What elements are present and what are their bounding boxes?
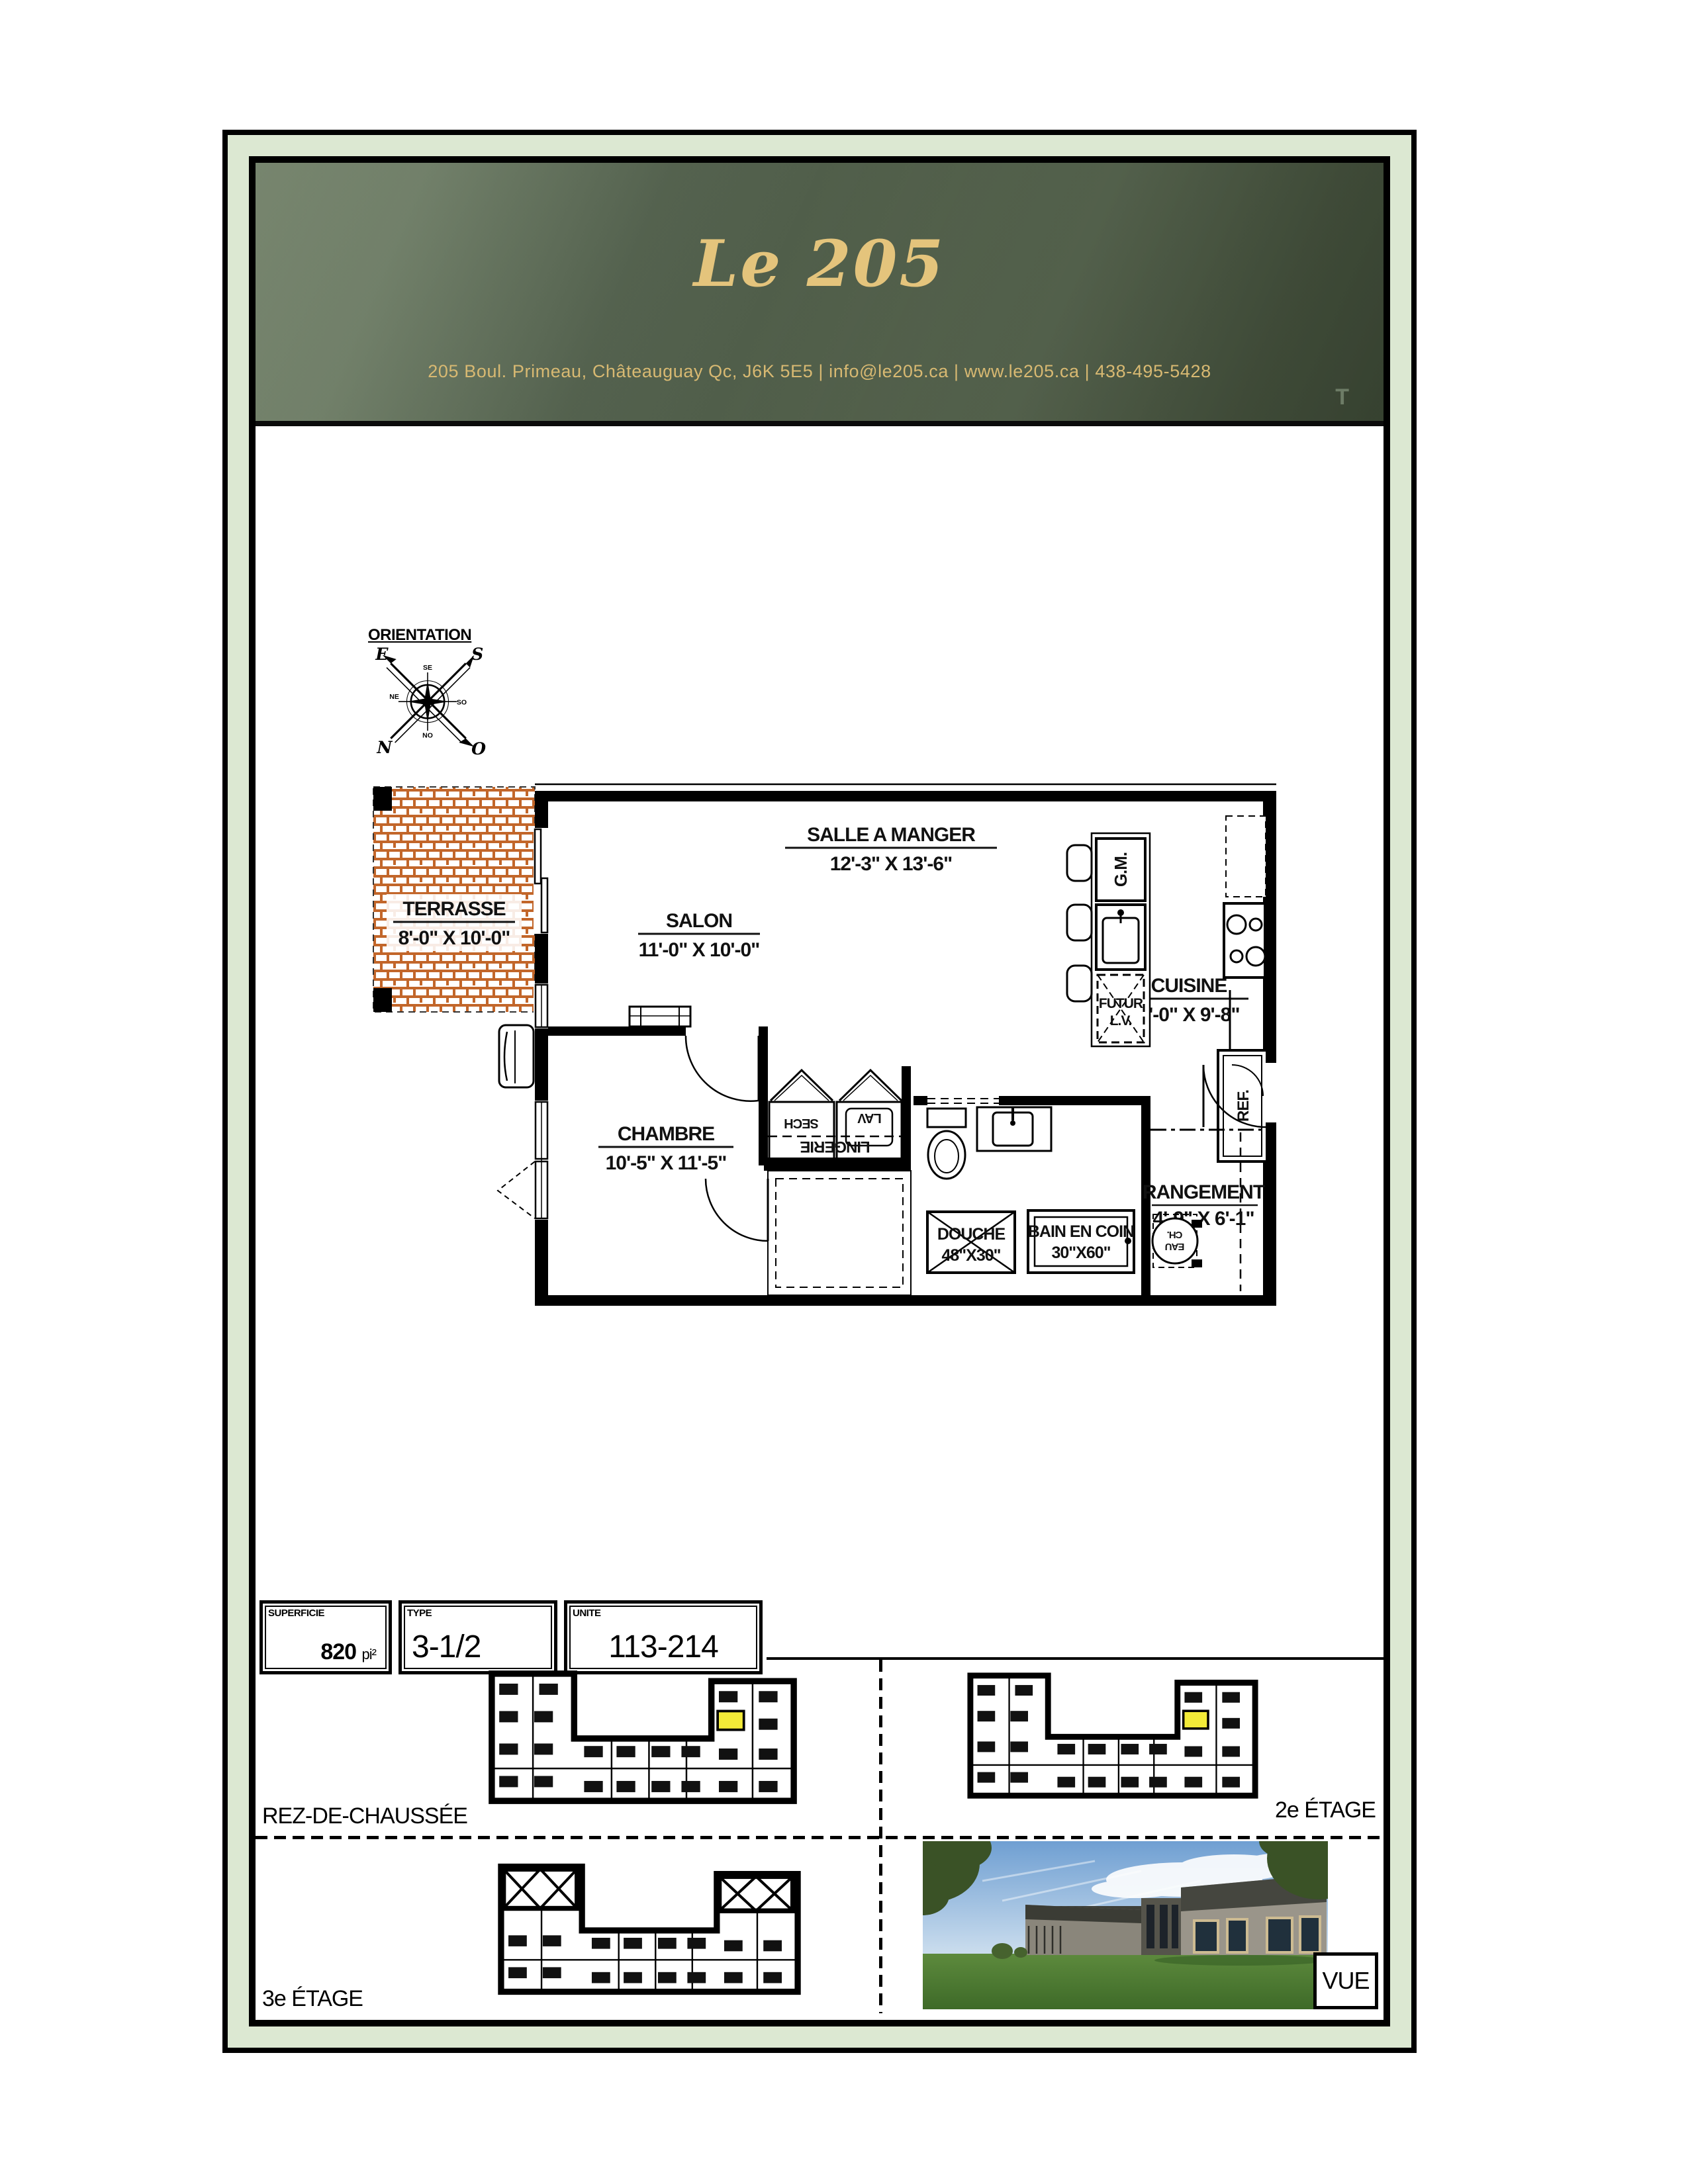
svg-text:SALLE A MANGER: SALLE A MANGER bbox=[807, 824, 976, 846]
section-divider-line bbox=[767, 1657, 1383, 1660]
level-label-etage3: 3e ÉTAGE bbox=[262, 1986, 363, 2012]
svg-text:LAV: LAV bbox=[857, 1111, 882, 1125]
room-label-salle-a-manger: SALLE A MANGER 12'-3" X 13'-6" bbox=[785, 824, 997, 875]
info-box-superficie: SUPERFICIE 820 pi² bbox=[259, 1600, 392, 1674]
superficie-value: 820 pi² bbox=[320, 1639, 376, 1665]
svg-text:L.V.: L.V. bbox=[1110, 1013, 1132, 1028]
heat-pump bbox=[499, 1025, 534, 1087]
stool-icon bbox=[1067, 845, 1092, 881]
unite-value: 113-214 bbox=[571, 1629, 756, 1665]
room-label-cuisine: CUISINE 8'-0" X 9'-8" bbox=[1136, 975, 1248, 1026]
superficie-label: SUPERFICIE bbox=[268, 1608, 324, 1619]
compass-rose-icon: N S E O SE SO NO NE bbox=[368, 645, 487, 756]
svg-text:SO: SO bbox=[457, 698, 467, 706]
svg-text:CH.: CH. bbox=[1167, 1229, 1183, 1240]
toilet-icon bbox=[927, 1109, 966, 1179]
svg-text:10'-5" X 11'-5": 10'-5" X 11'-5" bbox=[606, 1152, 727, 1174]
svg-text:48"X30": 48"X30" bbox=[942, 1246, 1001, 1265]
svg-text:8'-0" X 10'-0": 8'-0" X 10'-0" bbox=[399, 927, 510, 949]
room-label-salon: SALON 11'-0" X 10'-0" bbox=[638, 910, 760, 961]
floorplan-thumb-etage2 bbox=[954, 1664, 1272, 1807]
room-label-chambre: CHAMBRE 10'-5" X 11'-5" bbox=[598, 1123, 733, 1174]
shower-icon: DOUCHE 48"X30" bbox=[927, 1212, 1015, 1273]
patio-door bbox=[534, 828, 549, 934]
svg-text:SECH: SECH bbox=[784, 1116, 819, 1130]
vue-label-box: VUE bbox=[1313, 1952, 1378, 2009]
stool-icon bbox=[1067, 905, 1092, 940]
floor-plan-sheet: { "header": { "title": "Le 205", "addres… bbox=[0, 0, 1688, 2184]
svg-text:S: S bbox=[471, 645, 483, 664]
orientation-label: ORIENTATION bbox=[368, 626, 514, 645]
vertical-dashed-divider bbox=[879, 1660, 882, 2013]
type-value: 3-1/2 bbox=[412, 1629, 481, 1665]
stool-icon bbox=[1067, 966, 1092, 1001]
floor-plan: TERRASSE 8'-0" X 10'-0" bbox=[368, 762, 1283, 1324]
address-line: 205 Boul. Primeau, Châteauguay Qc, J6K 5… bbox=[256, 361, 1383, 382]
svg-text:RANGEMENT: RANGEMENT bbox=[1143, 1181, 1265, 1203]
lingerie-closet: SECH LAV LINGERIE bbox=[768, 1070, 903, 1162]
svg-text:TERRASSE: TERRASSE bbox=[402, 898, 505, 920]
svg-text:CHAMBRE: CHAMBRE bbox=[618, 1123, 714, 1145]
svg-text:E: E bbox=[375, 645, 389, 664]
door-arc bbox=[686, 1036, 759, 1101]
sheet-frame: Le 205 205 Boul. Primeau, Châteauguay Qc… bbox=[222, 130, 1417, 2053]
svg-text:EAU: EAU bbox=[1165, 1241, 1184, 1252]
type-label: TYPE bbox=[407, 1608, 432, 1619]
svg-text:11'-0" X 10'-0": 11'-0" X 10'-0" bbox=[639, 939, 760, 961]
level-label-etage2: 2e ÉTAGE bbox=[1275, 1797, 1376, 1823]
orientation-block: ORIENTATION N S E bbox=[368, 626, 514, 759]
building-photo bbox=[923, 1841, 1328, 2009]
window-chambre bbox=[498, 1101, 549, 1220]
door-arc bbox=[706, 1179, 768, 1241]
floorplan-thumb-rdc bbox=[474, 1661, 812, 1813]
svg-text:DOUCHE: DOUCHE bbox=[937, 1225, 1006, 1244]
corner-bath-icon: BAIN EN COIN 30"X60" bbox=[1028, 1210, 1134, 1273]
chambre-closet bbox=[706, 1171, 911, 1295]
header-banner: Le 205 205 Boul. Primeau, Châteauguay Qc… bbox=[256, 163, 1383, 426]
terrasse-area: TERRASSE 8'-0" X 10'-0" bbox=[373, 787, 535, 1012]
svg-text:NO: NO bbox=[422, 732, 433, 740]
bathroom: DOUCHE 48"X30" BAIN EN COIN 30"X60" bbox=[927, 1107, 1134, 1273]
svg-text:LINGERIE: LINGERIE bbox=[800, 1138, 870, 1156]
vanity-sink-icon bbox=[977, 1107, 1051, 1151]
svg-text:SE: SE bbox=[423, 664, 432, 672]
svg-text:NE: NE bbox=[389, 693, 399, 701]
floorplan-thumb-etage3 bbox=[484, 1854, 815, 2004]
page-title: Le 205 bbox=[256, 226, 1383, 301]
window-salon bbox=[534, 983, 549, 1028]
svg-text:REF.: REF. bbox=[1235, 1090, 1252, 1122]
stove-icon bbox=[1224, 903, 1265, 978]
svg-text:N: N bbox=[376, 737, 393, 756]
vue-label: VUE bbox=[1322, 1967, 1369, 1995]
svg-text:CUISINE: CUISINE bbox=[1151, 975, 1227, 997]
svg-text:12'-3" X 13'-6": 12'-3" X 13'-6" bbox=[830, 853, 952, 875]
futur-lave-vaisselle: FUTUR L.V. bbox=[1098, 975, 1144, 1042]
svg-text:SALON: SALON bbox=[666, 910, 732, 932]
svg-text:BAIN EN COIN: BAIN EN COIN bbox=[1028, 1222, 1134, 1241]
level-label-rdc: REZ-DE-CHAUSSÉE bbox=[262, 1803, 467, 1829]
svg-text:FUTUR: FUTUR bbox=[1099, 996, 1143, 1011]
svg-text:30"X60": 30"X60" bbox=[1052, 1244, 1111, 1262]
unite-label: UNITE bbox=[573, 1608, 601, 1619]
svg-text:G.M.: G.M. bbox=[1111, 852, 1131, 887]
svg-text:8'-0" X 9'-8": 8'-0" X 9'-8" bbox=[1138, 1004, 1239, 1026]
kitchen-island: G.M. FUTUR L.V. bbox=[1067, 833, 1150, 1046]
horizontal-dashed-divider bbox=[256, 1836, 1383, 1839]
svg-text:O: O bbox=[471, 739, 486, 756]
sheet-content: Le 205 205 Boul. Primeau, Châteauguay Qc… bbox=[249, 156, 1390, 2026]
corner-mark: T bbox=[1335, 385, 1349, 410]
